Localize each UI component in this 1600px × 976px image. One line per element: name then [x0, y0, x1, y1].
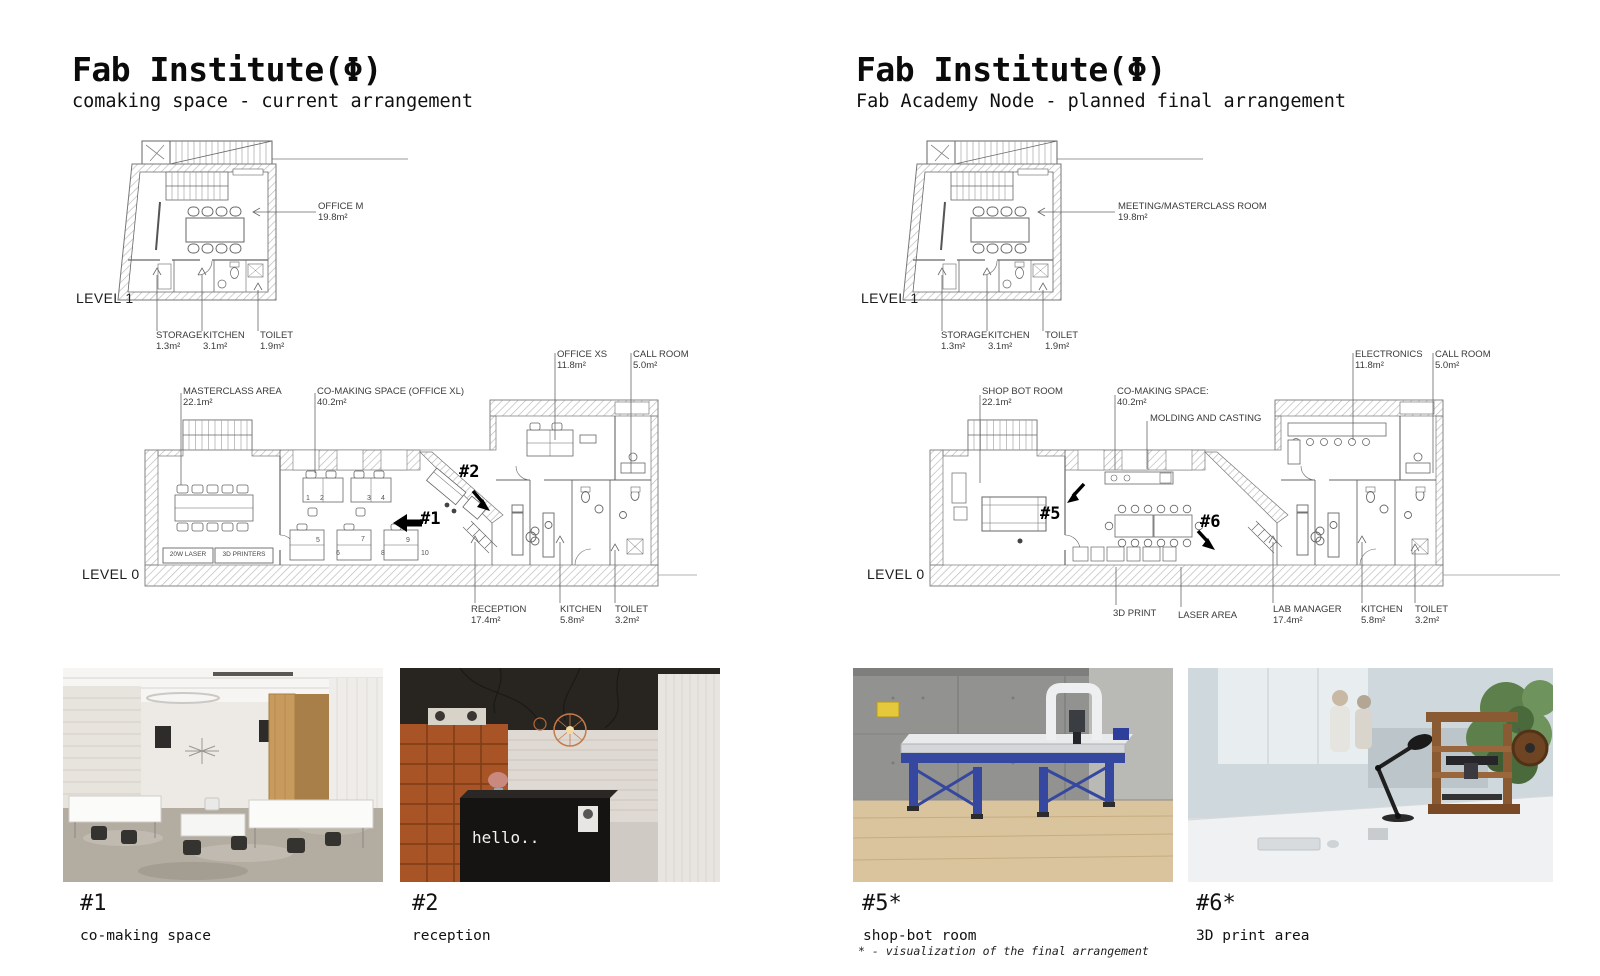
photo-co-making-space-art [63, 668, 383, 882]
photo-caption-text-1: co-making space [80, 928, 211, 944]
poster-canvas: { "columns": { "left": { "title": "Fab I… [0, 0, 1600, 976]
floorplan-level0-planned [860, 345, 1570, 617]
room-label-lab-manager: LAB MANAGER 17.4m² [1273, 604, 1342, 626]
page-subtitle-right: Fab Academy Node - planned final arrange… [856, 91, 1346, 112]
desk-number: 10 [421, 550, 429, 557]
room-label-masterclass: MASTERCLASS AREA 22.1m² [183, 386, 282, 408]
room-label-toilet-l0-left: TOILET 3.2m² [615, 604, 648, 626]
footnote-visualization: * - visualization of the final arrangeme… [858, 944, 1149, 958]
plan-marker-5: #5 [1040, 504, 1060, 524]
photo-co-making-space [63, 668, 383, 882]
desk-number: 4 [381, 495, 385, 502]
room-label-kitchen-l0-right: KITCHEN 5.8m² [1361, 604, 1403, 626]
room-label-call-room-right: CALL ROOM 5.0m² [1435, 349, 1491, 371]
desk-number: 5 [316, 537, 320, 544]
level0-label-right: LEVEL 0 [867, 566, 925, 582]
plan-marker-2: #2 [459, 462, 479, 482]
desk-number: 8 [381, 550, 385, 557]
desk-number: 7 [361, 536, 365, 543]
room-label-office-xs: OFFICE XS 11.8m² [557, 349, 607, 371]
room-label-reception: RECEPTION 17.4m² [471, 604, 526, 626]
room-label-comaking-left: CO-MAKING SPACE (OFFICE XL) 40.2m² [317, 386, 464, 408]
level0-label-left: LEVEL 0 [82, 566, 140, 582]
photo-3d-print-area [1188, 668, 1553, 882]
room-label-molding: MOLDING AND CASTING [1150, 413, 1261, 424]
vestibule-icon [927, 141, 955, 164]
desk-number: 9 [406, 537, 410, 544]
stairs-inner-icon [166, 172, 228, 200]
stairs-inner-icon [951, 172, 1013, 200]
photo-caption-text-5: shop-bot room [863, 928, 977, 944]
photo-caption-number-6: #6* [1196, 891, 1236, 916]
equipment-label-3d-printers: 3D PRINTERS [216, 551, 272, 558]
page-title-right: Fab Institute(Φ) [856, 50, 1166, 89]
photo-caption-number-2: #2 [412, 891, 439, 916]
room-label-office-m: OFFICE M 19.8m² [318, 201, 363, 223]
room-label-electronics: ELECTRONICS 11.8m² [1355, 349, 1423, 371]
level1-label-right: LEVEL 1 [861, 290, 919, 306]
floorplan-level1-planned [855, 138, 1205, 373]
room-label-kitchen-l0-left: KITCHEN 5.8m² [560, 604, 602, 626]
page-subtitle-left: comaking space - current arrangement [72, 91, 473, 112]
room-label-comaking-right: CO-MAKING SPACE: 40.2m² [1117, 386, 1209, 408]
desk-number: 3 [367, 495, 371, 502]
plan-marker-1: #1 [420, 509, 440, 529]
plan-marker-6: #6 [1200, 512, 1220, 532]
level1-label-left: LEVEL 1 [76, 290, 134, 306]
stairs-icon [968, 420, 1037, 450]
equipment-label-laser: 20W LASER [164, 551, 212, 558]
room-label-meeting-room: MEETING/MASTERCLASS ROOM 19.8m² [1118, 201, 1267, 223]
photo-3d-print-area-art [1188, 668, 1553, 882]
photo-reception [400, 668, 720, 882]
photo-caption-number-5: #5* [862, 891, 902, 916]
stairs-top-icon [955, 141, 1057, 164]
room-label-3d-print: 3D PRINT [1113, 608, 1156, 619]
reception-sign-text: hello.. [472, 828, 539, 847]
photo-reception-art [400, 668, 720, 882]
room-label-call-room-left: CALL ROOM 5.0m² [633, 349, 689, 371]
desk-number: 1 [306, 495, 310, 502]
photo-shopbot-room [853, 668, 1173, 882]
photo-shopbot-room-art [853, 668, 1173, 882]
photo-caption-number-1: #1 [80, 891, 107, 916]
photo-caption-text-2: reception [412, 928, 491, 944]
room-label-shopbot: SHOP BOT ROOM 22.1m² [982, 386, 1063, 408]
stairs-icon [183, 420, 252, 450]
vestibule-icon [142, 141, 170, 164]
stairs-top-icon [170, 141, 272, 164]
room-label-laser-area: LASER AREA [1178, 610, 1237, 621]
room-label-toilet-l0-right: TOILET 3.2m² [1415, 604, 1448, 626]
desk-number: 2 [320, 495, 324, 502]
page-title-left: Fab Institute(Φ) [72, 50, 382, 89]
photo-caption-text-6: 3D print area [1196, 928, 1310, 944]
desk-number: 6 [336, 550, 340, 557]
